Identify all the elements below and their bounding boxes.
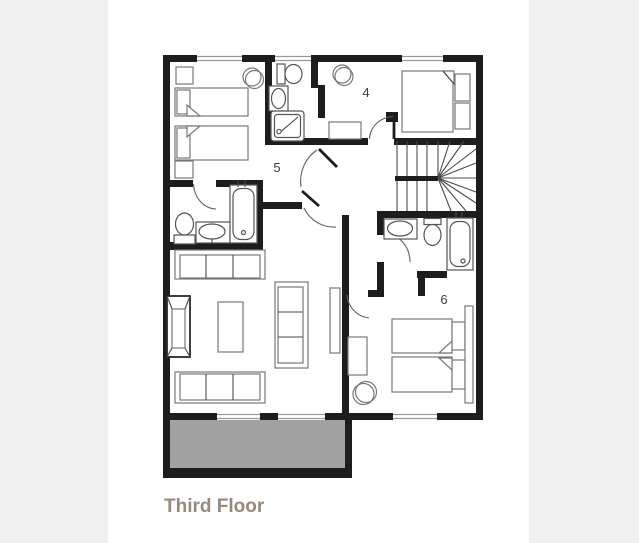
room-label-6: 6 bbox=[440, 292, 447, 307]
bedroom-5: 5 bbox=[175, 67, 281, 178]
nightstand bbox=[175, 161, 193, 178]
balcony bbox=[170, 420, 345, 468]
sofa bbox=[175, 250, 265, 279]
armchair bbox=[167, 296, 190, 357]
toilet-icon bbox=[424, 219, 441, 246]
sofa bbox=[175, 372, 265, 403]
radiator bbox=[330, 288, 340, 353]
stool-icon bbox=[243, 68, 264, 89]
twin-bed bbox=[175, 126, 248, 160]
bathroom-right bbox=[384, 212, 473, 271]
twin-bed bbox=[175, 88, 248, 116]
stool-icon bbox=[333, 65, 353, 86]
twin-bed bbox=[392, 319, 465, 353]
wardrobe bbox=[465, 306, 473, 403]
bathtub-icon bbox=[230, 181, 257, 244]
double-bed bbox=[402, 71, 470, 132]
washbasin-icon bbox=[196, 222, 230, 244]
door-leaf-bedroom-5 bbox=[319, 149, 337, 167]
shower-icon bbox=[271, 111, 304, 141]
bench bbox=[329, 122, 361, 139]
bathtub-icon bbox=[447, 212, 473, 271]
toilet-icon bbox=[277, 64, 285, 84]
washbasin-icon bbox=[384, 219, 417, 239]
bathroom-top bbox=[269, 64, 304, 141]
twin-bed bbox=[392, 357, 465, 392]
stool-icon bbox=[353, 382, 377, 405]
coffee-table bbox=[218, 302, 243, 352]
floor-caption: Third Floor bbox=[164, 496, 265, 517]
room-label-5: 5 bbox=[273, 160, 280, 175]
door-arc-bathroom-left bbox=[194, 184, 217, 209]
living-room bbox=[167, 250, 308, 403]
bedroom-4: 4 bbox=[329, 65, 470, 139]
sofa-unit bbox=[275, 282, 308, 368]
staircase bbox=[395, 141, 476, 211]
floor-plan-page: 5 4 bbox=[0, 0, 639, 543]
room-label-4: 4 bbox=[362, 85, 369, 100]
desk bbox=[348, 337, 367, 375]
bathroom-left bbox=[174, 181, 257, 245]
floor-plan-drawing: 5 4 bbox=[0, 0, 639, 543]
door-arc-bedroom-6 bbox=[347, 295, 369, 318]
bedroom-6: 6 bbox=[330, 288, 473, 405]
toilet-icon bbox=[174, 213, 195, 244]
door-leaf-living-room bbox=[302, 191, 319, 206]
nightstand bbox=[176, 67, 193, 84]
